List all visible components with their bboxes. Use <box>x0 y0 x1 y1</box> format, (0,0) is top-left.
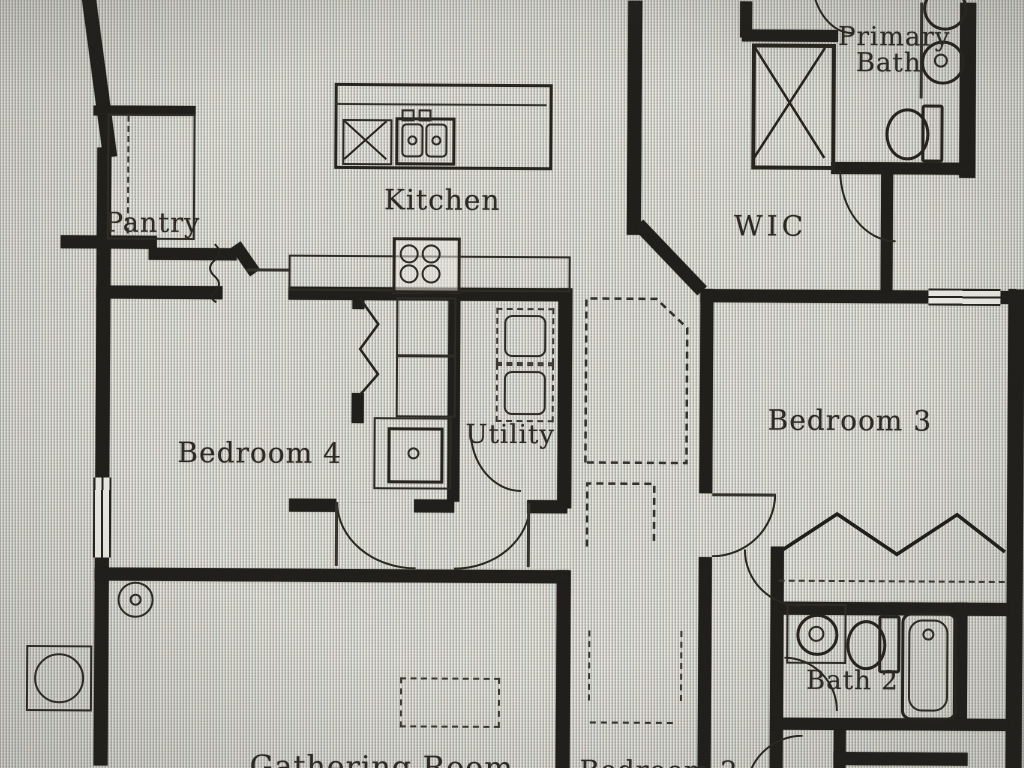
closet-shelf <box>396 297 456 356</box>
wall <box>742 29 838 42</box>
ceiling-fan-dot <box>130 594 142 606</box>
door-leaf <box>335 502 338 566</box>
room-label-wic: WIC <box>734 209 807 242</box>
room-label-cropped-bottom-left: Gathering Room <box>249 749 513 768</box>
sink-drain <box>431 136 441 146</box>
wall <box>1006 289 1024 768</box>
wall <box>773 718 1008 731</box>
floor-plan: Pantry Kitchen Primary Bath WIC Bedroom … <box>0 0 1024 768</box>
wall <box>352 393 364 423</box>
burner <box>400 264 419 283</box>
wall <box>557 288 572 508</box>
attic-hatch-outline <box>585 298 687 463</box>
room-label-pantry: Pantry <box>105 208 201 240</box>
ceiling-break-line <box>587 483 654 550</box>
equipment-circle <box>34 653 84 703</box>
room-label-bath2: Bath 2 <box>806 666 899 697</box>
wall <box>95 567 569 583</box>
wall <box>352 291 364 309</box>
bifold-door-icon <box>360 299 379 395</box>
dryer-drum <box>504 371 546 415</box>
tub-drain <box>922 629 934 641</box>
door-swing-utility-hall <box>454 503 531 570</box>
counter-edge <box>247 268 291 271</box>
wall <box>634 220 707 296</box>
room-label-cropped-bottom-center: Bedroom 2 <box>579 755 738 768</box>
door-swing-hall-closet <box>744 549 801 606</box>
door-swing-bedroom4 <box>336 502 416 569</box>
door-swing-wic <box>839 170 896 242</box>
closet-shelf-line <box>779 580 1005 583</box>
wall <box>96 285 222 299</box>
water-heater-dot <box>407 447 419 459</box>
washer-drum <box>504 315 546 357</box>
ceiling-line <box>588 630 590 700</box>
sink-drain <box>934 54 948 68</box>
burner <box>400 244 419 263</box>
shower-icon <box>751 43 836 170</box>
wall <box>627 1 642 235</box>
wall <box>527 500 567 513</box>
toilet-tank <box>921 104 943 162</box>
hall-dashed-line <box>590 722 678 723</box>
wall <box>699 289 713 493</box>
window-icon <box>928 289 1000 306</box>
window-icon <box>93 477 111 557</box>
burner <box>422 264 441 283</box>
closet-shelf <box>396 355 456 417</box>
ceiling-line <box>680 631 682 701</box>
room-label-bedroom4: Bedroom 4 <box>177 436 342 470</box>
door-leaf <box>527 503 530 567</box>
room-label-utility: Utility <box>466 420 556 451</box>
burner <box>422 244 441 263</box>
door-leaf <box>712 493 774 496</box>
toilet-tank <box>878 615 900 673</box>
wall <box>698 557 712 768</box>
dishwasher-icon <box>342 119 392 165</box>
wall <box>289 499 336 512</box>
wall <box>149 248 237 261</box>
wall <box>556 570 571 768</box>
room-label-primary-bath-line2: Bath <box>856 48 922 78</box>
faucet <box>419 109 432 121</box>
sink-drain <box>407 135 417 145</box>
door-swing-bedroom3 <box>712 493 776 557</box>
attic-access-outline <box>400 677 500 728</box>
closet-rod-icon <box>777 514 1005 555</box>
faucet <box>402 109 415 121</box>
room-label-kitchen: Kitchen <box>384 183 501 217</box>
floor-plan-sheet: Pantry Kitchen Primary Bath WIC Bedroom … <box>0 0 1024 768</box>
sink-drain <box>808 626 824 642</box>
wall <box>834 752 968 766</box>
wall <box>959 3 976 178</box>
room-label-bedroom3: Bedroom 3 <box>768 404 933 438</box>
